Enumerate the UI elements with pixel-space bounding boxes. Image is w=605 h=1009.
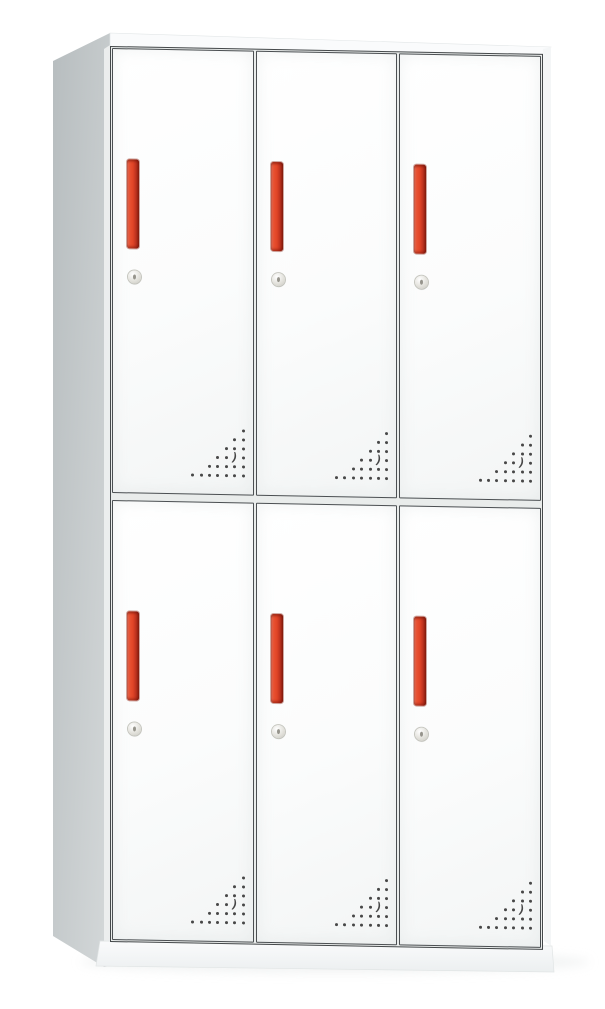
door-handle (127, 611, 139, 700)
vent-hole-dot (360, 476, 363, 479)
vent-hole-dot (369, 923, 372, 926)
vent-hole-dot (242, 474, 245, 477)
vent-hole-dot (242, 894, 245, 897)
vent-hole-dot (200, 473, 203, 476)
vent-hole-dot (512, 926, 515, 929)
vent-hole-dot (208, 473, 211, 476)
vent-hole-dot (369, 914, 372, 917)
door-handle (414, 617, 426, 706)
vent-hole-dot (529, 917, 532, 920)
vent-hole-dot (242, 921, 245, 924)
locker-door-top-right: ) (399, 53, 541, 501)
vent-hole-dot (208, 920, 211, 923)
vent-hole-dot (521, 890, 524, 893)
vent-holes: ) (474, 434, 532, 483)
vent-curve-mark: ) (230, 451, 239, 463)
vent-hole-dot (385, 432, 388, 435)
vent-hole-dot (529, 882, 532, 885)
vent-hole-dot (521, 917, 524, 920)
vent-hole-dot (225, 456, 228, 459)
vent-hole-dot (385, 915, 388, 918)
vent-hole-dot (242, 429, 245, 432)
vent-hole-dot (377, 923, 380, 926)
vent-hole-dot (191, 920, 194, 923)
vent-hole-dot (360, 458, 363, 461)
locker-front: )))))) (110, 46, 543, 950)
vent-holes: ) (187, 875, 245, 924)
vent-hole-dot (360, 914, 363, 917)
vent-hole-dot (512, 470, 515, 473)
vent-hole-dot (504, 917, 507, 920)
vent-hole-dot (385, 906, 388, 909)
vent-hole-dot (233, 885, 236, 888)
vent-hole-dot (385, 897, 388, 900)
vent-hole-dot (495, 470, 498, 473)
vent-hole-dot (385, 450, 388, 453)
vent-holes: ) (330, 431, 388, 480)
vent-hole-dot (335, 923, 338, 926)
vent-hole-dot (352, 476, 355, 479)
vent-hole-dot (343, 476, 346, 479)
vent-hole-dot (352, 914, 355, 917)
vent-hole-dot (512, 479, 515, 482)
vent-hole-dot (360, 905, 363, 908)
vent-hole-dot (385, 468, 388, 471)
vent-hole-dot (385, 477, 388, 480)
vent-hole-dot (225, 912, 228, 915)
door-handle (414, 165, 426, 254)
vent-hole-dot (225, 903, 228, 906)
vent-hole-dot (385, 441, 388, 444)
vent-hole-dot (377, 914, 380, 917)
vent-hole-dot (360, 467, 363, 470)
vent-hole-dot (521, 443, 524, 446)
vent-hole-dot (529, 461, 532, 464)
vent-hole-dot (521, 479, 524, 482)
vent-hole-dot (335, 476, 338, 479)
vent-curve-mark: ) (230, 898, 239, 910)
vent-holes: ) (474, 881, 532, 930)
vent-hole-dot (512, 908, 515, 911)
vent-hole-dot (521, 470, 524, 473)
vent-hole-dot (208, 911, 211, 914)
vent-hole-dot (233, 465, 236, 468)
vent-hole-dot (377, 888, 380, 891)
vent-hole-dot (225, 894, 228, 897)
vent-hole-dot (377, 441, 380, 444)
vent-hole-dot (369, 467, 372, 470)
key-lock (272, 725, 285, 738)
locker-door-top-middle: ) (256, 51, 398, 499)
vent-hole-dot (529, 444, 532, 447)
door-handle (271, 614, 283, 703)
vent-hole-dot (504, 908, 507, 911)
vent-hole-dot (233, 921, 236, 924)
vent-hole-dot (369, 450, 372, 453)
vent-hole-dot (385, 459, 388, 462)
vent-holes: ) (330, 878, 388, 927)
key-lock (128, 722, 141, 735)
vent-hole-dot (233, 474, 236, 477)
vent-hole-dot (352, 467, 355, 470)
cabinet-left-side-panel (53, 33, 110, 967)
vent-hole-dot (343, 923, 346, 926)
vent-hole-dot (487, 925, 490, 928)
vent-hole-dot (216, 903, 219, 906)
vent-curve-mark: ) (517, 903, 526, 915)
vent-hole-dot (369, 458, 372, 461)
locker-door-bottom-right: ) (399, 505, 541, 948)
vent-hole-dot (529, 479, 532, 482)
vent-hole-dot (529, 452, 532, 455)
vent-hole-dot (512, 461, 515, 464)
vent-hole-dot (521, 926, 524, 929)
vent-hole-dot (385, 924, 388, 927)
vent-hole-dot (216, 456, 219, 459)
vent-curve-mark: ) (374, 901, 383, 913)
key-lock (272, 273, 285, 286)
vent-hole-dot (242, 438, 245, 441)
vent-hole-dot (377, 467, 380, 470)
vent-hole-dot (504, 470, 507, 473)
locker-door-top-left: ) (112, 48, 254, 496)
vent-hole-dot (225, 921, 228, 924)
door-handle (271, 162, 283, 251)
vent-hole-dot (242, 456, 245, 459)
cabinet-right-edge (543, 47, 551, 946)
vent-hole-dot (495, 479, 498, 482)
vent-hole-dot (487, 478, 490, 481)
vent-hole-dot (216, 473, 219, 476)
vent-hole-dot (369, 897, 372, 900)
vent-hole-dot (504, 479, 507, 482)
vent-hole-dot (225, 474, 228, 477)
vent-curve-mark: ) (517, 456, 526, 468)
vent-hole-dot (360, 923, 363, 926)
vent-hole-dot (233, 912, 236, 915)
vent-hole-dot (369, 905, 372, 908)
vent-hole-dot (242, 903, 245, 906)
vent-hole-dot (479, 925, 482, 928)
vent-hole-dot (352, 923, 355, 926)
vent-hole-dot (479, 478, 482, 481)
vent-hole-dot (495, 917, 498, 920)
vent-hole-dot (504, 926, 507, 929)
vent-hole-dot (200, 920, 203, 923)
vent-hole-dot (512, 917, 515, 920)
vent-hole-dot (242, 876, 245, 879)
door-handle (127, 159, 139, 248)
vent-hole-dot (385, 879, 388, 882)
locker-door-bottom-middle: ) (256, 503, 398, 946)
vent-hole-dot (512, 452, 515, 455)
vent-hole-dot (529, 899, 532, 902)
key-lock (128, 270, 141, 283)
vent-hole-dot (225, 465, 228, 468)
vent-hole-dot (216, 465, 219, 468)
vent-hole-dot (242, 465, 245, 468)
vent-hole-dot (529, 926, 532, 929)
vent-hole-dot (242, 912, 245, 915)
vent-hole-dot (495, 926, 498, 929)
vent-curve-mark: ) (374, 454, 383, 466)
vent-hole-dot (369, 476, 372, 479)
locker-product-photo: )))))) (0, 0, 605, 1009)
locker-door-bottom-left: ) (112, 500, 254, 943)
vent-hole-dot (242, 885, 245, 888)
vent-hole-dot (529, 891, 532, 894)
vent-hole-dot (225, 447, 228, 450)
key-lock (415, 276, 428, 289)
vent-hole-dot (512, 899, 515, 902)
vent-hole-dot (216, 920, 219, 923)
vent-hole-dot (529, 470, 532, 473)
vent-hole-dot (385, 888, 388, 891)
vent-hole-dot (242, 447, 245, 450)
vent-hole-dot (233, 438, 236, 441)
vent-holes: ) (187, 428, 245, 477)
vent-hole-dot (191, 473, 194, 476)
key-lock (415, 728, 428, 741)
vent-hole-dot (216, 912, 219, 915)
vent-hole-dot (504, 461, 507, 464)
vent-hole-dot (377, 476, 380, 479)
vent-hole-dot (529, 908, 532, 911)
vent-hole-dot (529, 435, 532, 438)
vent-hole-dot (208, 464, 211, 467)
